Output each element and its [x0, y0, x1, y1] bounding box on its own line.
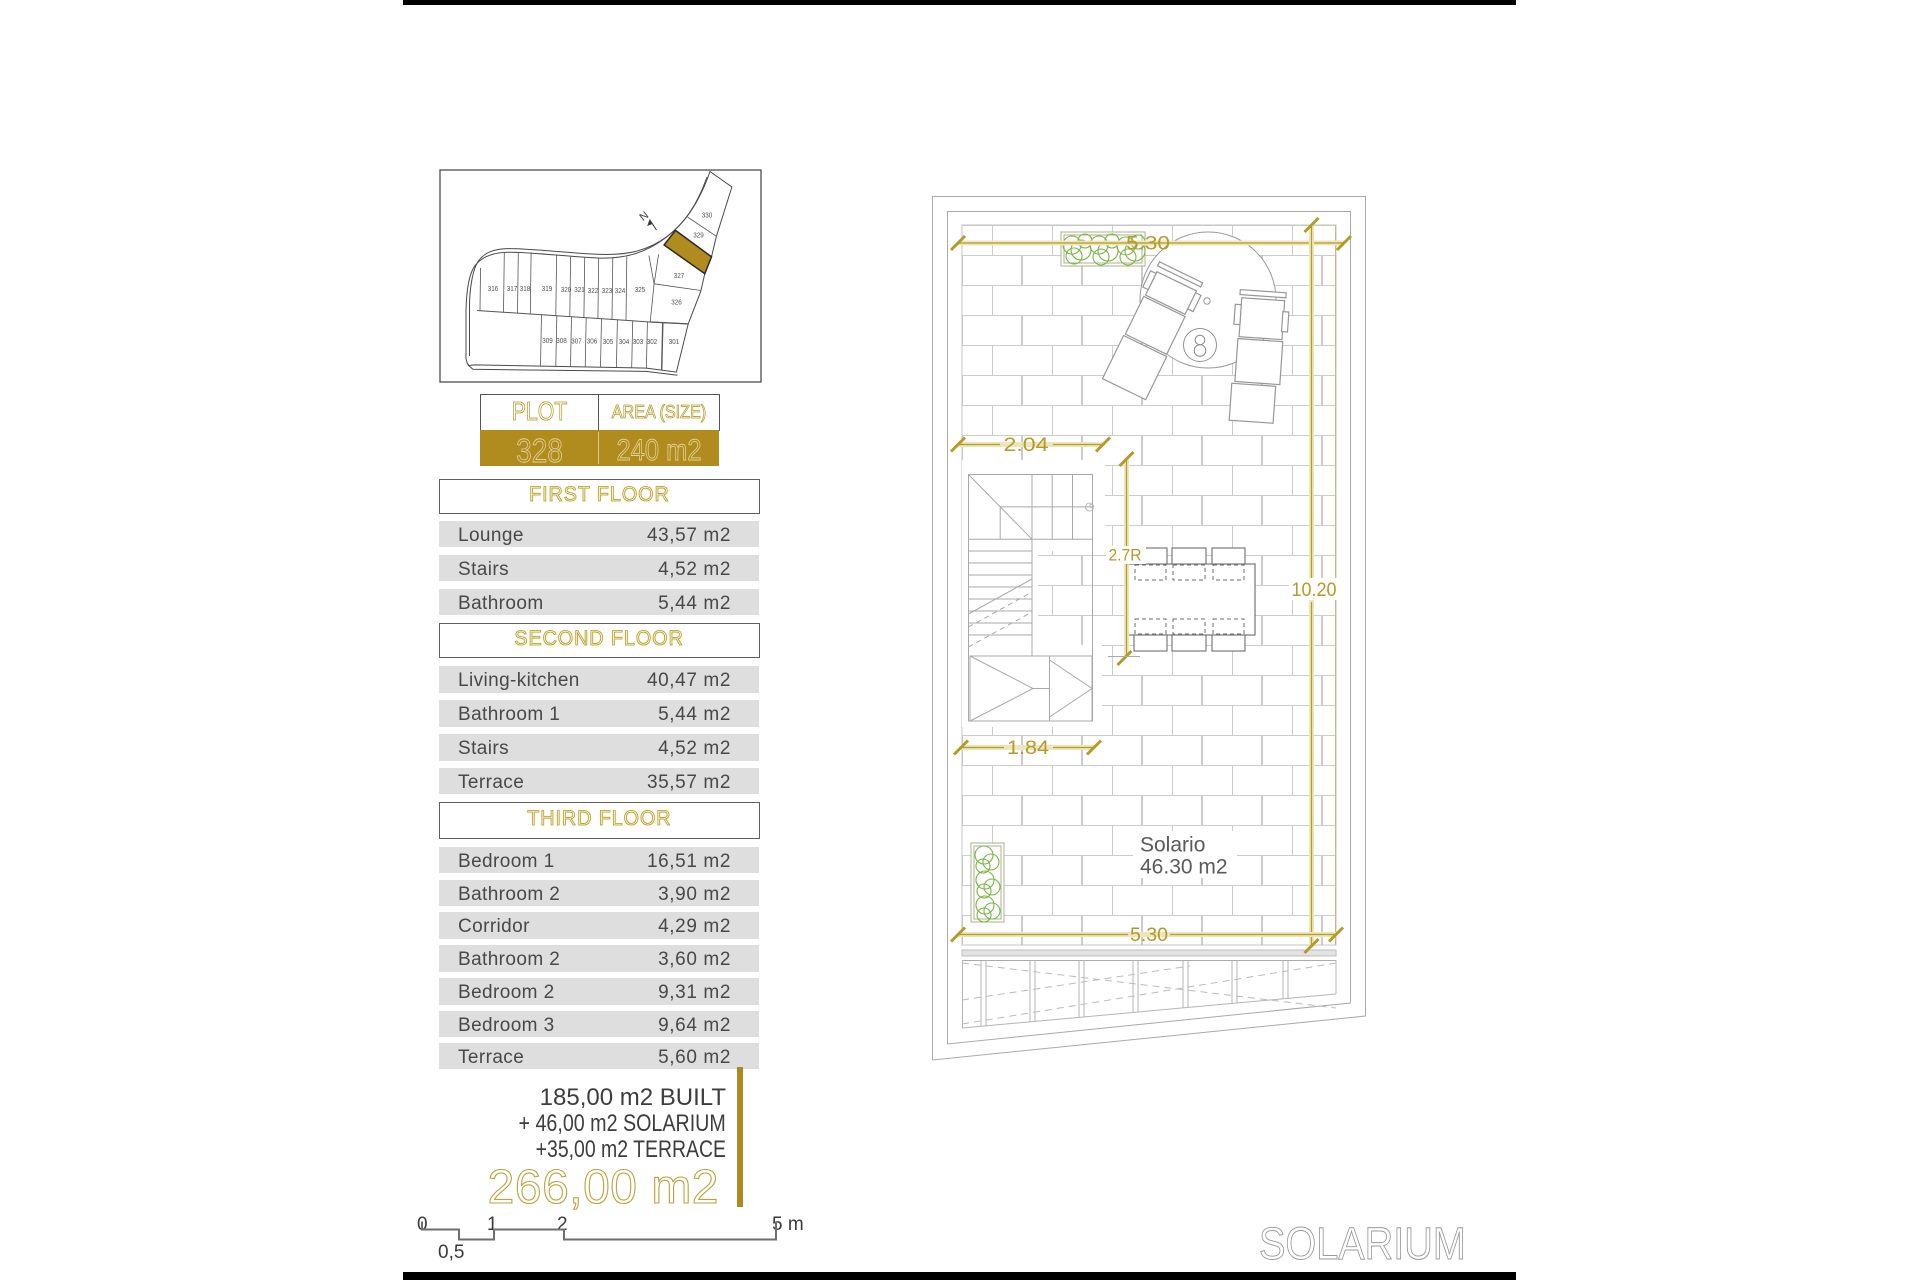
svg-text:1.84: 1.84: [1007, 738, 1049, 759]
svg-text:321: 321: [574, 287, 585, 294]
svg-text:322: 322: [588, 288, 599, 295]
svg-text:Solario: Solario: [1140, 834, 1205, 857]
svg-text:304: 304: [619, 339, 630, 346]
svg-text:2.7R: 2.7R: [1109, 546, 1142, 565]
svg-text:46.30 m2: 46.30 m2: [1140, 856, 1228, 879]
svg-text:327: 327: [674, 273, 685, 280]
svg-text:329: 329: [693, 233, 704, 240]
svg-text:5.30: 5.30: [1130, 925, 1168, 946]
svg-text:305: 305: [603, 339, 614, 346]
svg-text:330: 330: [702, 213, 713, 220]
svg-text:5.30: 5.30: [1126, 234, 1170, 255]
svg-text:319: 319: [542, 286, 553, 293]
svg-text:320: 320: [561, 287, 572, 294]
svg-text:303: 303: [633, 339, 644, 346]
svg-text:316: 316: [488, 286, 499, 293]
svg-text:308: 308: [556, 338, 567, 345]
svg-text:324: 324: [615, 288, 626, 295]
svg-text:326: 326: [671, 300, 682, 307]
svg-text:307: 307: [571, 339, 582, 346]
svg-text:318: 318: [520, 286, 531, 293]
svg-text:317: 317: [507, 286, 518, 293]
svg-text:325: 325: [635, 287, 646, 294]
svg-text:323: 323: [602, 288, 613, 295]
svg-text:301: 301: [669, 339, 680, 346]
svg-text:302: 302: [647, 339, 658, 346]
svg-text:10.20: 10.20: [1292, 580, 1337, 601]
svg-text:2.04: 2.04: [1004, 435, 1050, 456]
svg-text:306: 306: [587, 339, 598, 346]
svg-text:309: 309: [542, 338, 553, 345]
